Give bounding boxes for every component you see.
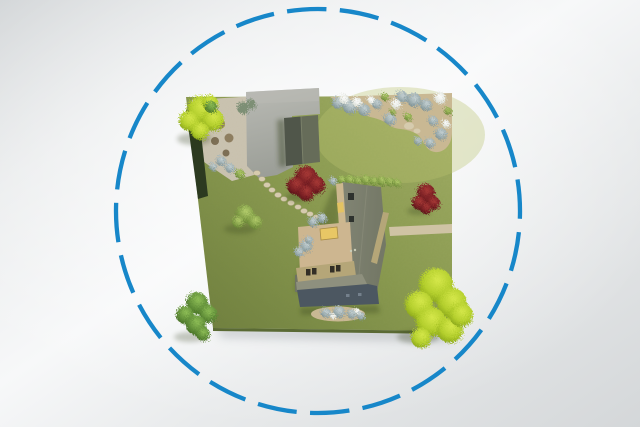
garden-bench — [337, 202, 344, 213]
driveway-bush-green — [235, 169, 245, 179]
scene-stage — [0, 0, 640, 427]
scene-canvas — [0, 0, 640, 427]
small-gray-bush — [329, 177, 337, 185]
fire-pit — [223, 150, 230, 157]
shed-roof-west — [284, 117, 303, 167]
shed-roof-east — [301, 115, 320, 164]
patio-chair — [211, 137, 219, 145]
dark-bush-top — [205, 101, 217, 113]
patio-chair — [225, 134, 234, 143]
garden-shed — [277, 115, 320, 167]
garden-table — [320, 227, 338, 240]
